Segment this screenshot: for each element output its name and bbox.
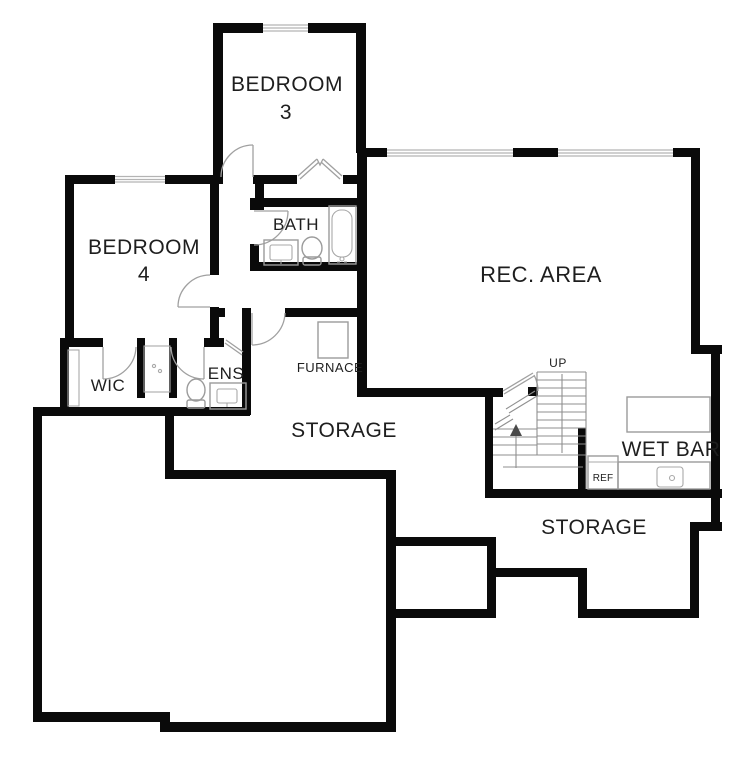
bar-sink [657,467,683,487]
label-storage-lower: STORAGE [541,516,647,539]
vanity-sink [210,383,246,409]
walk-in-closet-shelf [68,350,79,406]
toilet [187,379,205,408]
staircase [493,372,586,489]
room-labels: BEDROOM 3 BEDROOM 4 BATH WIC ENS FURNACE… [88,73,720,539]
window [115,177,165,183]
label-bedroom3: BEDROOM [231,73,343,96]
label-bedroom3-number: 3 [280,101,292,124]
floor-plan-page: BEDROOM 3 BEDROOM 4 BATH WIC ENS FURNACE… [0,0,751,768]
bifold-closet-door [298,159,342,179]
door-swing [225,340,243,355]
label-storage-middle: STORAGE [291,419,397,442]
label-bedroom4: BEDROOM [88,236,200,259]
walls [33,23,722,732]
label-ref: REF [593,473,614,484]
label-ens: ENS [208,364,244,383]
door-swing [252,313,285,345]
window [263,25,308,31]
label-wet-bar: WET BAR [622,438,721,461]
toilet [302,237,322,265]
floor-plan: BEDROOM 3 BEDROOM 4 BATH WIC ENS FURNACE… [0,0,751,768]
window [558,150,673,156]
label-bath: BATH [273,215,319,234]
furnace-unit [318,322,348,358]
label-up: UP [549,356,567,370]
vanity-sink [264,240,298,265]
up-arrow [510,424,522,468]
label-furnace: FURNACE [297,360,363,375]
windows [115,25,673,182]
door-swing [178,275,210,307]
door-swing [221,145,253,177]
shower [144,346,170,392]
door-swing [103,347,136,379]
label-bedroom4-number: 4 [138,263,150,286]
label-rec-area: REC. AREA [480,262,602,287]
bathtub [329,206,356,264]
window [387,150,513,156]
label-wic: WIC [91,376,126,395]
